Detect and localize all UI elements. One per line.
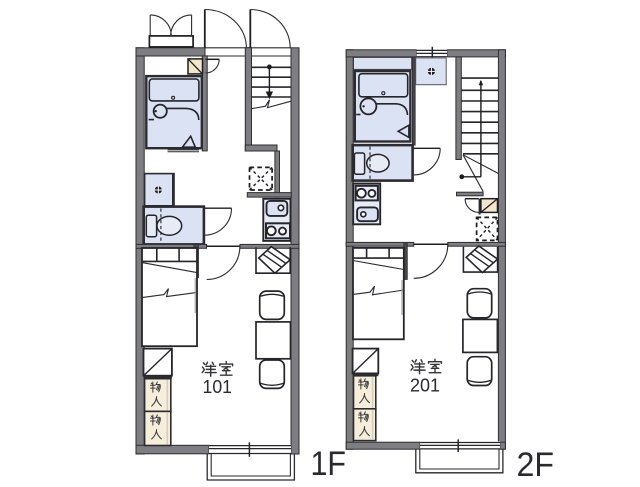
svg-text:101: 101 — [203, 376, 233, 397]
svg-text:1F: 1F — [311, 445, 347, 483]
svg-text:2F: 2F — [517, 446, 555, 484]
svg-text:201: 201 — [410, 374, 440, 395]
